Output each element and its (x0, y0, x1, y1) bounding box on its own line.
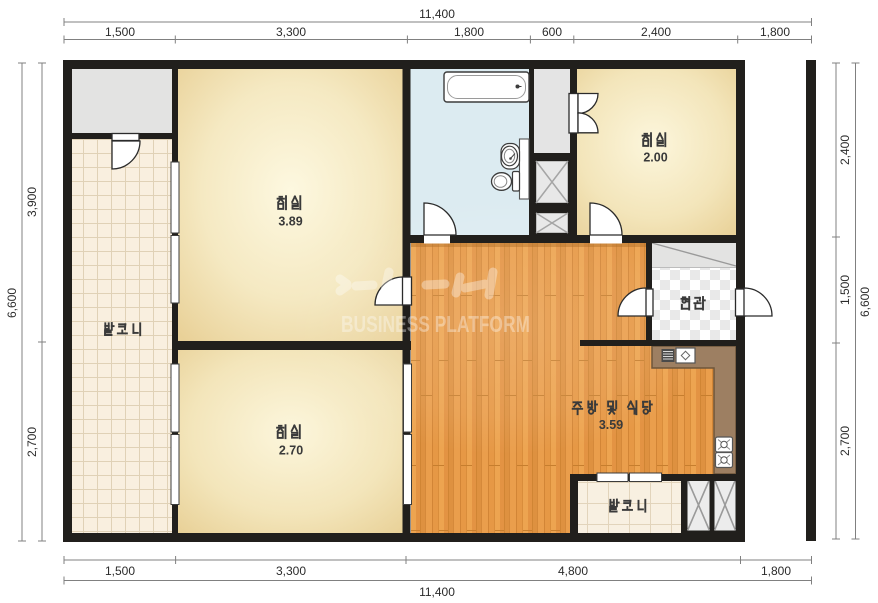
svg-text:1,500: 1,500 (105, 564, 135, 578)
svg-text:3.59: 3.59 (599, 418, 623, 432)
svg-text:3.89: 3.89 (278, 215, 302, 229)
svg-text:600: 600 (542, 25, 562, 39)
svg-text:6,600: 6,600 (858, 287, 872, 317)
svg-text:2,700: 2,700 (25, 427, 39, 457)
svg-text:3,900: 3,900 (25, 187, 39, 217)
svg-text:2,700: 2,700 (838, 426, 852, 456)
svg-text:1,500: 1,500 (105, 25, 135, 39)
svg-text:2.70: 2.70 (279, 444, 303, 458)
svg-text:BUSINESS PLATFORM: BUSINESS PLATFORM (341, 311, 530, 337)
svg-text:2,400: 2,400 (838, 135, 852, 165)
svg-text:1,800: 1,800 (761, 564, 791, 578)
svg-text:6,600: 6,600 (5, 288, 19, 318)
svg-text:4,800: 4,800 (558, 564, 588, 578)
svg-text:2.00: 2.00 (643, 151, 667, 165)
svg-text:3,300: 3,300 (276, 25, 306, 39)
svg-text:1,800: 1,800 (760, 25, 790, 39)
svg-text:11,400: 11,400 (419, 7, 455, 21)
svg-text:1,500: 1,500 (838, 275, 852, 305)
svg-text:11,400: 11,400 (419, 585, 455, 599)
svg-text:3,300: 3,300 (276, 564, 306, 578)
svg-text:1,800: 1,800 (454, 25, 484, 39)
svg-text:2,400: 2,400 (641, 25, 671, 39)
